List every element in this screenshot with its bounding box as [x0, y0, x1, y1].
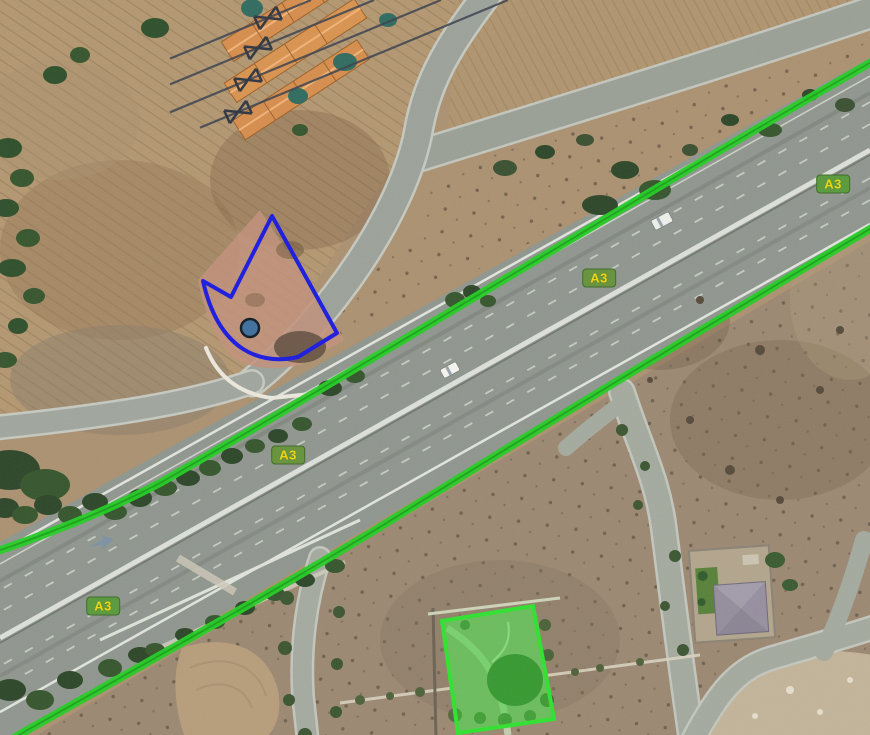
- satellite-imagery: [0, 0, 870, 735]
- route-shield-a3: A3: [816, 175, 850, 194]
- route-shield-a3: A3: [582, 269, 616, 288]
- noise-overlay: [0, 0, 870, 735]
- map-canvas[interactable]: A3 A3 A3 A3: [0, 0, 870, 735]
- route-shield-a3: A3: [271, 446, 305, 465]
- route-shield-a3: A3: [86, 597, 120, 616]
